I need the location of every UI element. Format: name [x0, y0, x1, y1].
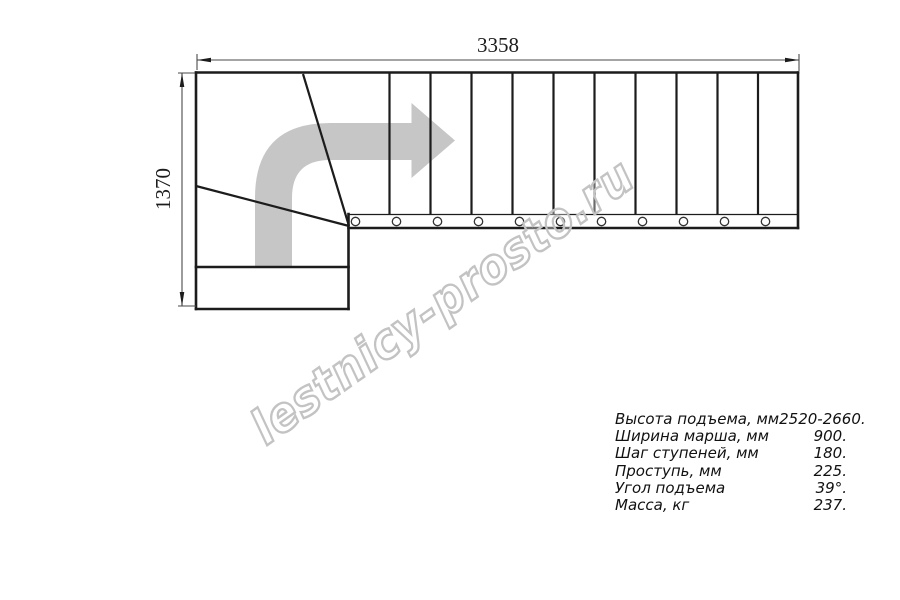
spec-label: Шаг ступеней, мм [615, 445, 759, 462]
width-dimension-label: 3358 [477, 33, 519, 57]
spec-label: Ширина марша, мм [615, 428, 769, 445]
spec-row-step: Шаг ступеней, мм 180. [615, 445, 847, 462]
spec-row-height: Высота подъема, мм 2520-2660. [615, 411, 847, 428]
spec-label: Проступь, мм [615, 463, 722, 480]
stair-plan-canvas: 3358 1370 lestnicy-prosto.ru Высота подъ… [0, 0, 900, 600]
spec-value: 225. [814, 463, 847, 480]
dim-arrow-up-icon [180, 73, 185, 87]
watermark: lestnicy-prosto.ru [241, 148, 645, 456]
spec-row-angle: Угол подъема 39°. [615, 480, 847, 497]
spec-label: Высота подъема, мм [615, 411, 779, 428]
spec-row-mass: Масса, кг 237. [615, 497, 847, 514]
width-dimension: 3358 [197, 33, 799, 71]
spec-value: 180. [814, 445, 847, 462]
spec-value: 2520-2660. [779, 411, 866, 428]
height-dimension: 1370 [151, 73, 196, 306]
spec-row-tread: Проступь, мм 225. [615, 463, 847, 480]
height-dimension-label: 1370 [151, 168, 175, 210]
dim-arrow-down-icon [180, 292, 185, 306]
spec-row-width: Ширина марша, мм 900. [615, 428, 847, 445]
spec-value: 237. [814, 497, 847, 514]
specs-table: Высота подъема, мм 2520-2660. Ширина мар… [615, 411, 847, 514]
spec-label: Масса, кг [615, 497, 689, 514]
direction-arrow-icon [255, 103, 455, 267]
dim-arrow-right-icon [785, 58, 799, 63]
spec-value: 900. [814, 428, 847, 445]
spec-label: Угол подъема [615, 480, 725, 497]
dim-arrow-left-icon [197, 58, 211, 63]
spec-value: 39°. [816, 480, 847, 497]
